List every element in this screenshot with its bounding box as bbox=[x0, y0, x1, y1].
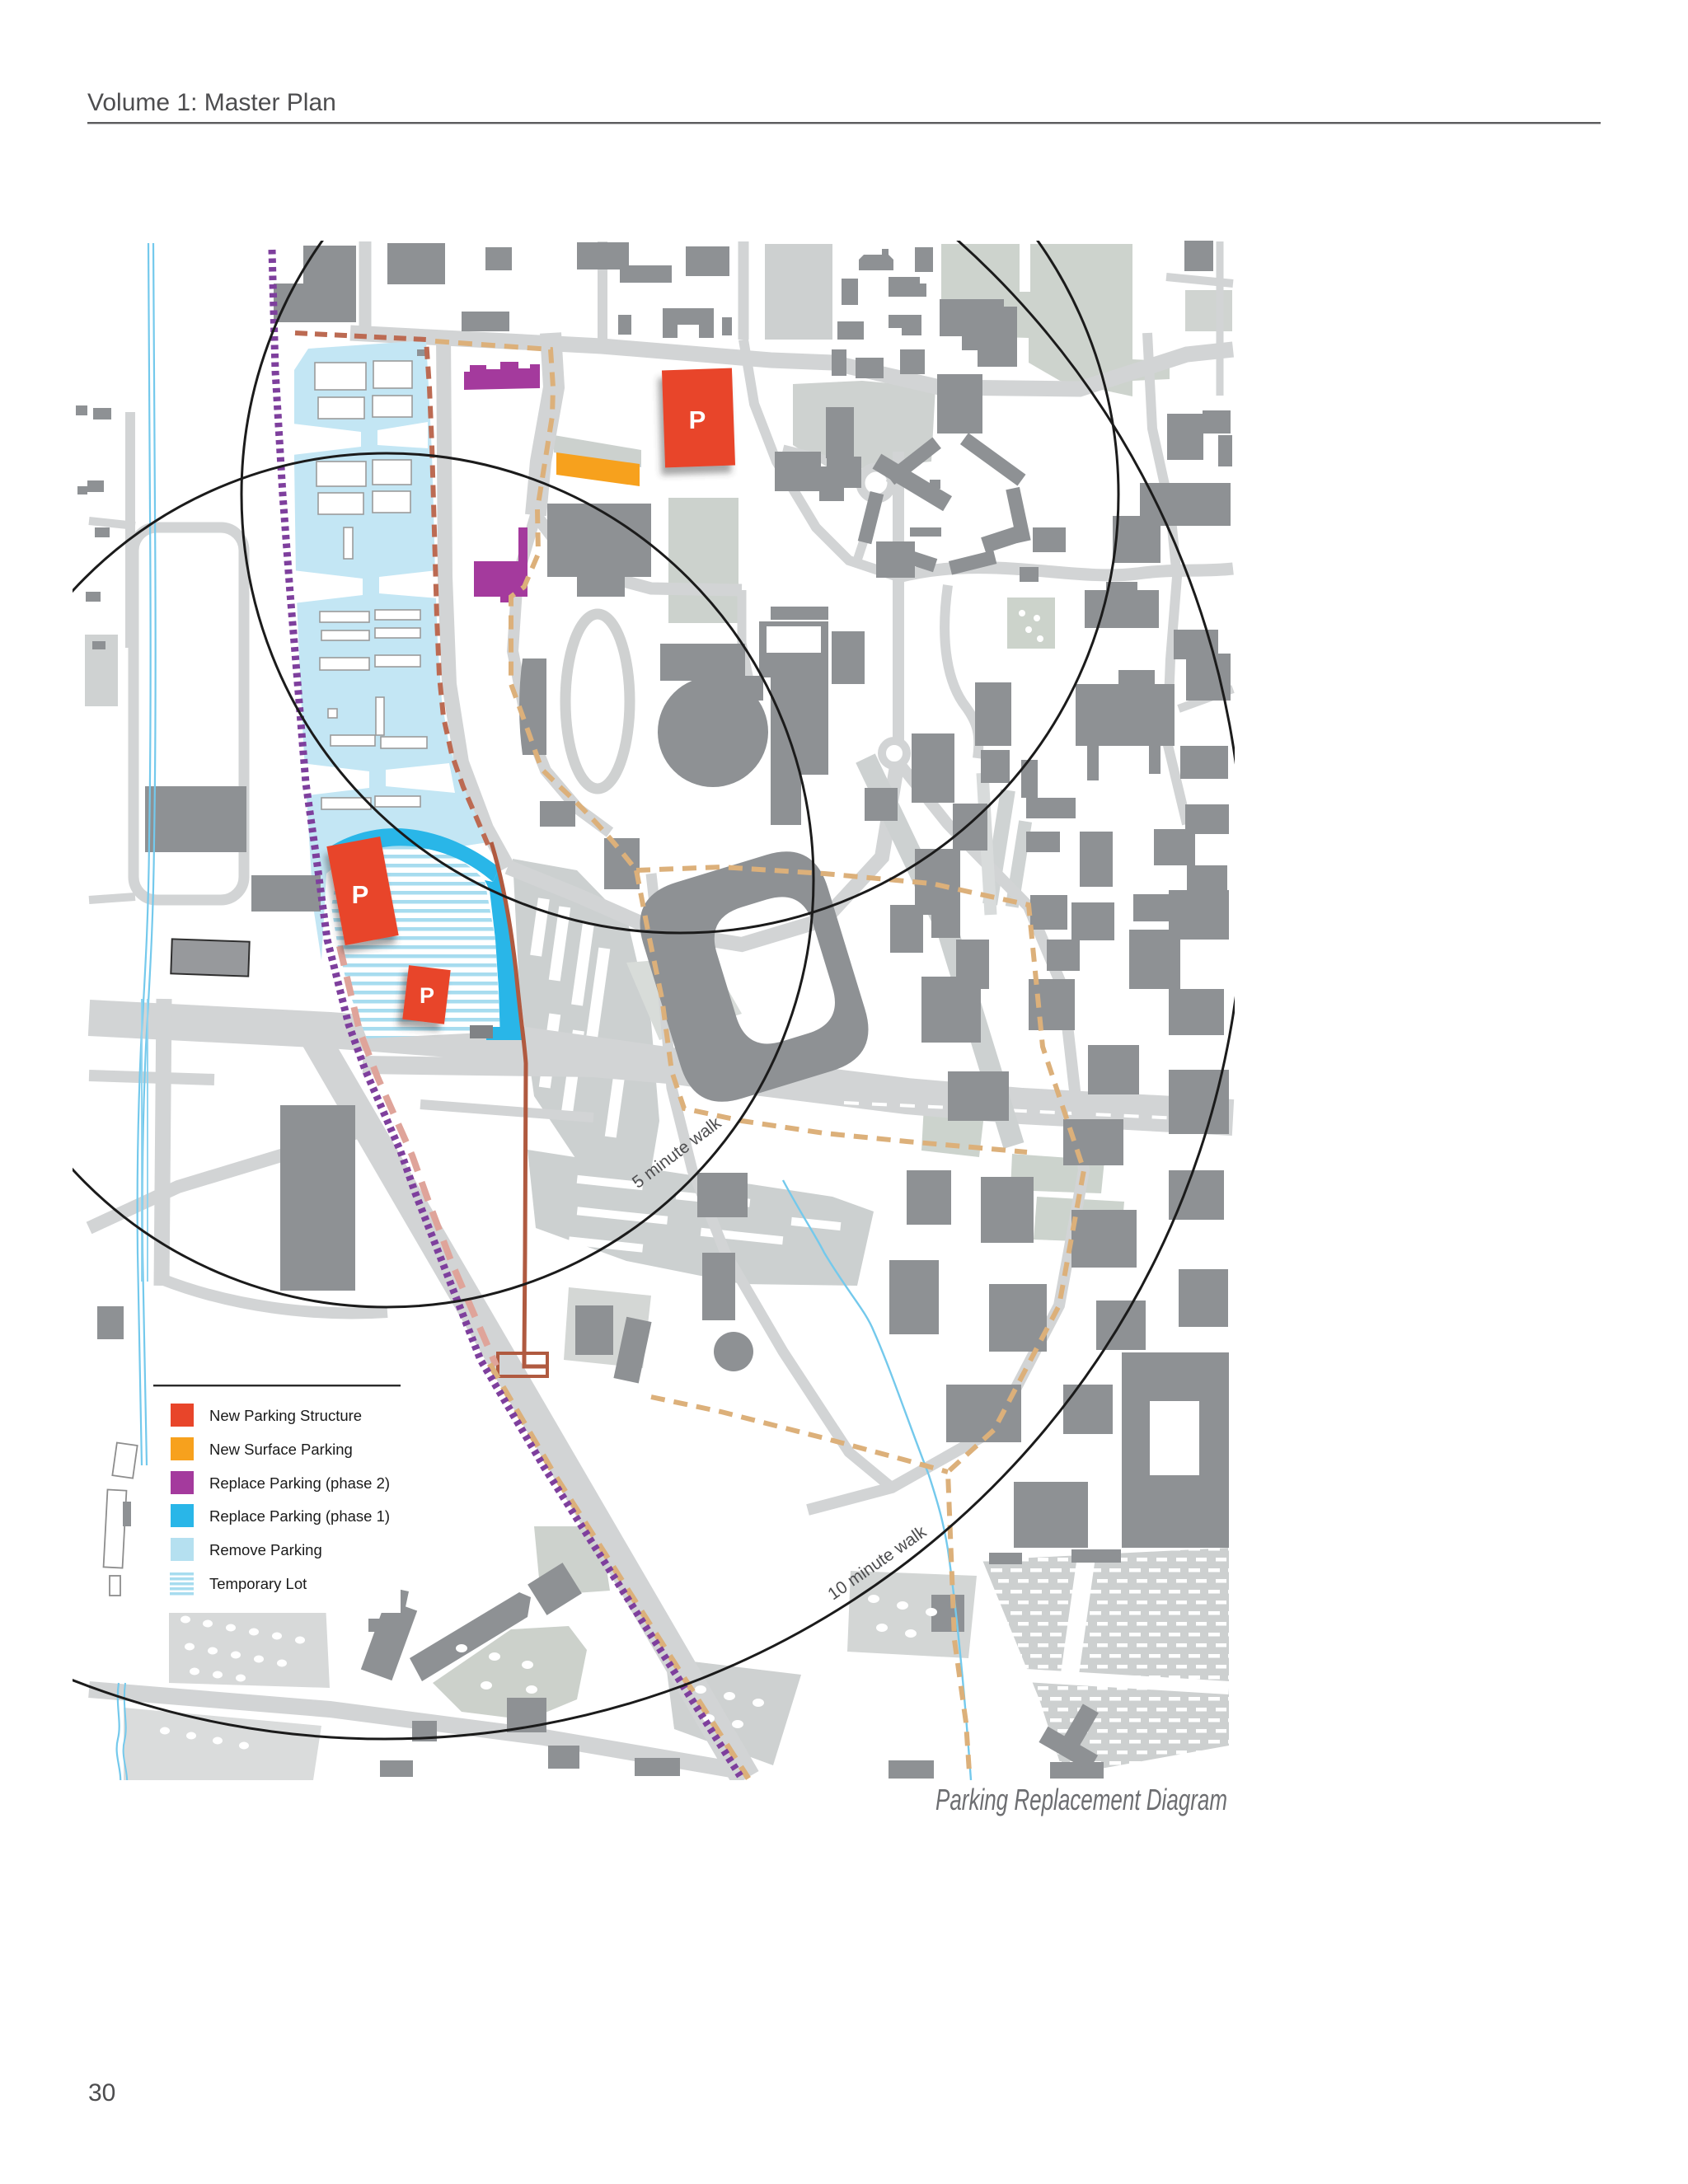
svg-text:Replace Parking (phase 1): Replace Parking (phase 1) bbox=[209, 1507, 390, 1525]
svg-text:P: P bbox=[689, 405, 706, 434]
svg-text:P: P bbox=[352, 880, 369, 909]
svg-text:New Parking Structure: New Parking Structure bbox=[209, 1407, 362, 1424]
svg-text:Replace Parking (phase 2): Replace Parking (phase 2) bbox=[209, 1474, 390, 1492]
svg-text:30: 30 bbox=[88, 2079, 115, 2107]
svg-text:Parking Replacement Diagram: Parking Replacement Diagram bbox=[935, 1783, 1227, 1816]
svg-text:New Surface Parking: New Surface Parking bbox=[209, 1441, 353, 1458]
svg-text:Volume 1: Master Plan: Volume 1: Master Plan bbox=[87, 89, 336, 116]
svg-text:Temporary Lot: Temporary Lot bbox=[209, 1575, 307, 1592]
svg-text:Remove Parking: Remove Parking bbox=[209, 1541, 322, 1558]
svg-text:P: P bbox=[420, 983, 434, 1008]
